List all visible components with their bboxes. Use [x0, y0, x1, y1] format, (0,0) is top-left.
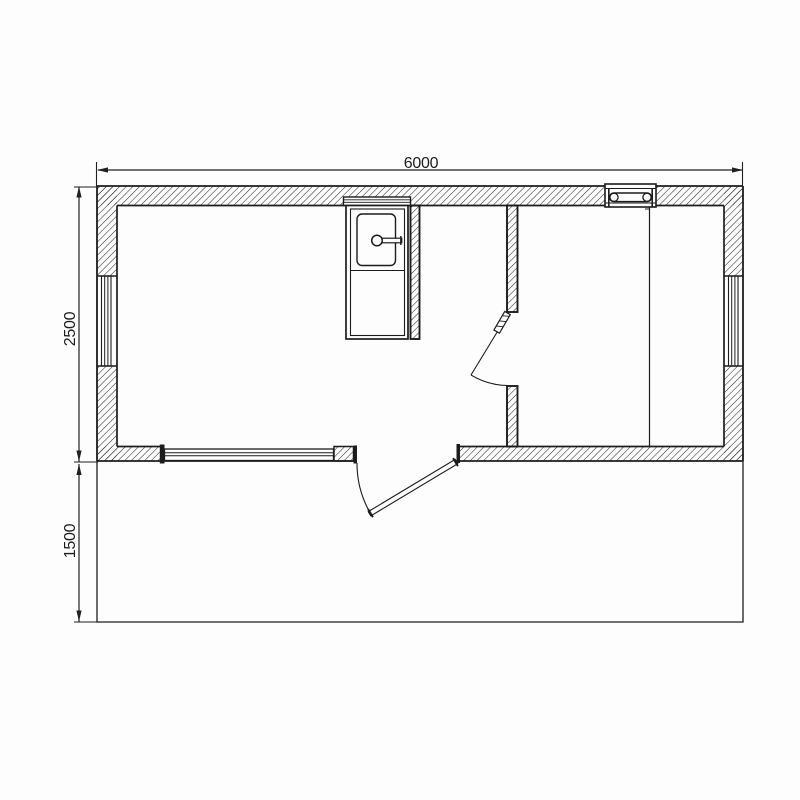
svg-text:6000: 6000 [404, 155, 439, 172]
svg-text:1500: 1500 [62, 523, 79, 558]
svg-text:2500: 2500 [62, 311, 79, 346]
